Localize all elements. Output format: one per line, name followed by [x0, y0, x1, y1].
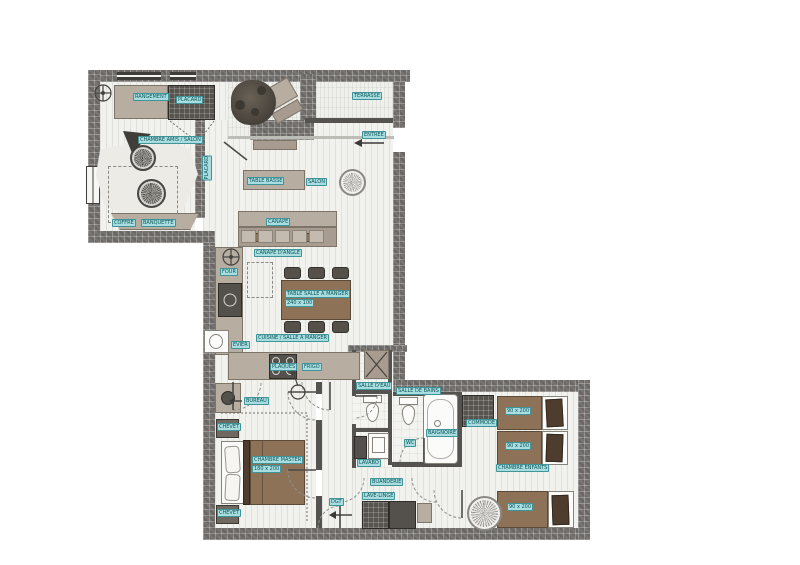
label-dining-table: TABLE SALLE A MANGER — [285, 290, 350, 298]
pillow — [224, 474, 240, 502]
dining-chair — [308, 321, 325, 333]
kitchen-upper-cabinets — [247, 262, 273, 298]
label-wc: WC — [404, 439, 416, 447]
window-top-2 — [170, 72, 196, 80]
terrace-step — [253, 140, 297, 150]
master-headboard — [243, 440, 250, 505]
room-label-kids: CHAMBRE ENFANTS — [496, 464, 549, 472]
wall-left-lower — [203, 243, 215, 540]
toilet-tank-2 — [399, 397, 418, 405]
wall-terrace-right-bottom — [305, 118, 393, 123]
label-laundry: BUANDERIE — [370, 478, 403, 486]
wall-left-upper — [88, 70, 100, 243]
toilet-tank-1 — [363, 395, 382, 403]
wall-right-living — [393, 152, 405, 392]
floor-plan: CHAMBRE AMIS / SALON RANGEMENT PLACARD C… — [0, 0, 800, 565]
label-basin: LAVABO — [357, 459, 381, 467]
partition-bath-h2 — [352, 428, 392, 432]
plant-icon — [339, 169, 366, 196]
basin-bowl — [372, 437, 385, 453]
floor-terrace-right — [316, 82, 393, 118]
laundry-cabinet — [417, 503, 432, 523]
dining-chair — [332, 267, 349, 279]
basin-cabinet — [354, 436, 367, 459]
label-bathtub: BAIGNOIRE — [426, 429, 458, 437]
label-master-bed-size: 180 x 200 — [252, 465, 281, 473]
kids-bed-1-pillow — [545, 399, 563, 428]
kitchen-sink-basin — [209, 334, 223, 349]
dining-chair — [284, 267, 301, 279]
kids-round-rug — [467, 496, 502, 531]
sofa-cushion — [241, 230, 256, 243]
partition-master-right-b — [316, 420, 322, 470]
label-desk: BUREAU — [244, 397, 269, 405]
oven — [218, 283, 242, 317]
dining-chair — [284, 321, 301, 333]
entry-storage-unit — [114, 85, 168, 119]
label-washer: LAVE-LINGE — [362, 492, 395, 500]
label-entry-closet: PLACARD — [176, 96, 203, 104]
dining-chair — [308, 267, 325, 279]
wall-right-upper — [393, 82, 405, 128]
label-nightstand-2: CHEVET — [217, 509, 241, 517]
shower-stall — [364, 350, 389, 379]
label-sofa-type: CANAPE D'ANGLE — [254, 249, 302, 257]
label-corridor-closet: PLACARD — [202, 155, 212, 180]
pillow — [224, 446, 241, 474]
window-top-1 — [117, 72, 161, 80]
room-label-guest: CHAMBRE AMIS / SALON — [138, 136, 203, 144]
label-guest-chest: COFFRE — [112, 219, 136, 227]
label-sofa: CANAPE — [266, 218, 290, 226]
room-label-kitchen: CUISINE / SALLE A MANGER — [256, 334, 329, 342]
kids-bed-2-pillow — [546, 434, 564, 463]
round-fan-chair-2 — [137, 179, 166, 208]
label-entry-storage: RANGEMENT — [133, 93, 169, 101]
dining-chair — [332, 321, 349, 333]
kids-bed-3-pillow — [551, 495, 569, 526]
room-label-hallway: DGT — [329, 498, 344, 506]
wall-bottom — [203, 528, 590, 540]
tree-icon — [231, 80, 276, 125]
bathtub-drain — [434, 420, 441, 427]
label-oven: FOUR — [220, 268, 238, 276]
label-guest-bench: BANQUETTE — [141, 219, 176, 227]
label-kids-bed-size-1: 90 x 200 — [505, 407, 531, 415]
label-hob: PLAQUES — [270, 363, 297, 371]
wall-terrace-divider — [300, 74, 316, 122]
partition-bath-h1 — [352, 390, 392, 394]
label-dining-size: 240 x 100 — [285, 299, 314, 307]
room-label-terrace: TERRASSE — [352, 92, 382, 100]
desk-chair — [221, 391, 235, 405]
label-sink: EVIER — [231, 341, 250, 349]
partition-master-right-c — [316, 496, 322, 528]
room-label-shower-room: SALLE D'EAU — [356, 382, 392, 390]
label-nightstand-1: CHEVET — [217, 423, 241, 431]
sofa-cushion — [292, 230, 307, 243]
label-kids-dresser: COMMODE — [466, 419, 497, 427]
sofa-cushion — [275, 230, 290, 243]
room-label-salon: SALON — [306, 178, 327, 186]
sofa-cushion — [309, 230, 324, 243]
label-entree: ENTREE — [362, 131, 386, 139]
wall-guest-bottom — [88, 231, 215, 243]
washing-machine — [362, 501, 389, 529]
label-coffee-table: TABLE BASSE — [247, 177, 284, 185]
label-fridge: FRIGO — [302, 363, 322, 371]
room-label-master: CHAMBRE MASTER — [252, 456, 303, 464]
sofa-cushion — [258, 230, 273, 243]
wall-right-wing-right — [578, 380, 590, 540]
partition-master-right-a — [316, 382, 322, 394]
round-fan-chair-1 — [130, 145, 156, 171]
dryer — [389, 501, 416, 529]
label-kids-bed-size-3: 90 x 200 — [507, 503, 533, 511]
label-kids-bed-size-2: 90 x 200 — [505, 442, 531, 450]
room-label-bathroom: SALLE DE BAINS — [396, 387, 441, 395]
